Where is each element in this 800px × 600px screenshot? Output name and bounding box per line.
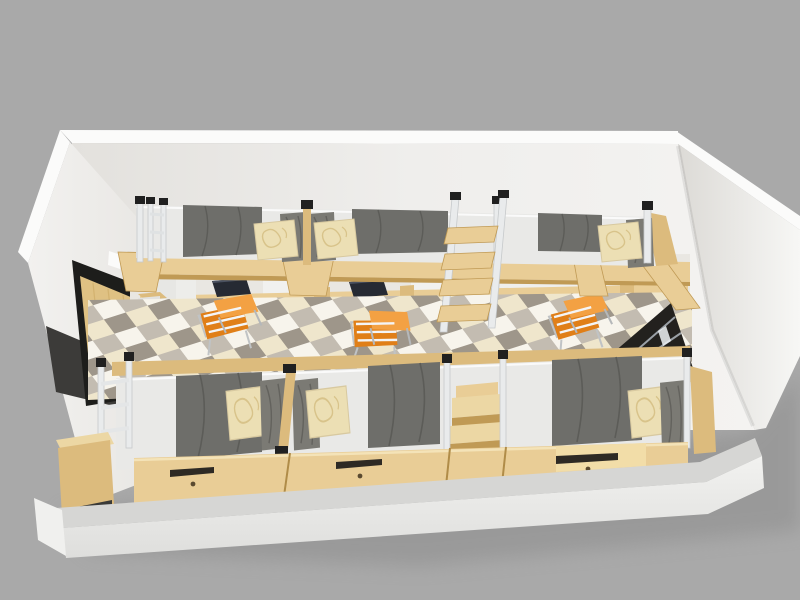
loft-bed-2-mattress: [352, 209, 448, 254]
drawer-knob-2: [358, 474, 363, 479]
lower-bed-3-headboard: [690, 366, 716, 454]
ladder-tread-2: [441, 252, 495, 270]
pillow-cream-top-left: [254, 220, 298, 260]
loft-bed-1-mattress: [183, 205, 262, 257]
dorm-room-render-stage: 3D axonometric cutaway render of a dormi…: [0, 0, 800, 600]
ladder-tread-1: [444, 226, 498, 244]
ladder-tread-4: [437, 304, 491, 322]
laptop-1: [212, 278, 251, 297]
drawer-knob-1: [191, 482, 196, 487]
ladder-tread-3: [439, 278, 493, 296]
pillow-cream-top-end: [598, 222, 642, 262]
back-wall-top-edge: [60, 130, 678, 144]
lower-bed-2-mattress: [368, 362, 440, 448]
pillow-cream-top-right: [314, 219, 358, 259]
step-tread-1: [452, 394, 500, 418]
dorm-room-render: 3D axonometric cutaway render of a dormi…: [0, 0, 800, 600]
loft-left-guard: [135, 196, 168, 262]
loft-bed-3-mattress: [538, 213, 602, 252]
pillow-cream-bottom-right: [306, 386, 350, 438]
